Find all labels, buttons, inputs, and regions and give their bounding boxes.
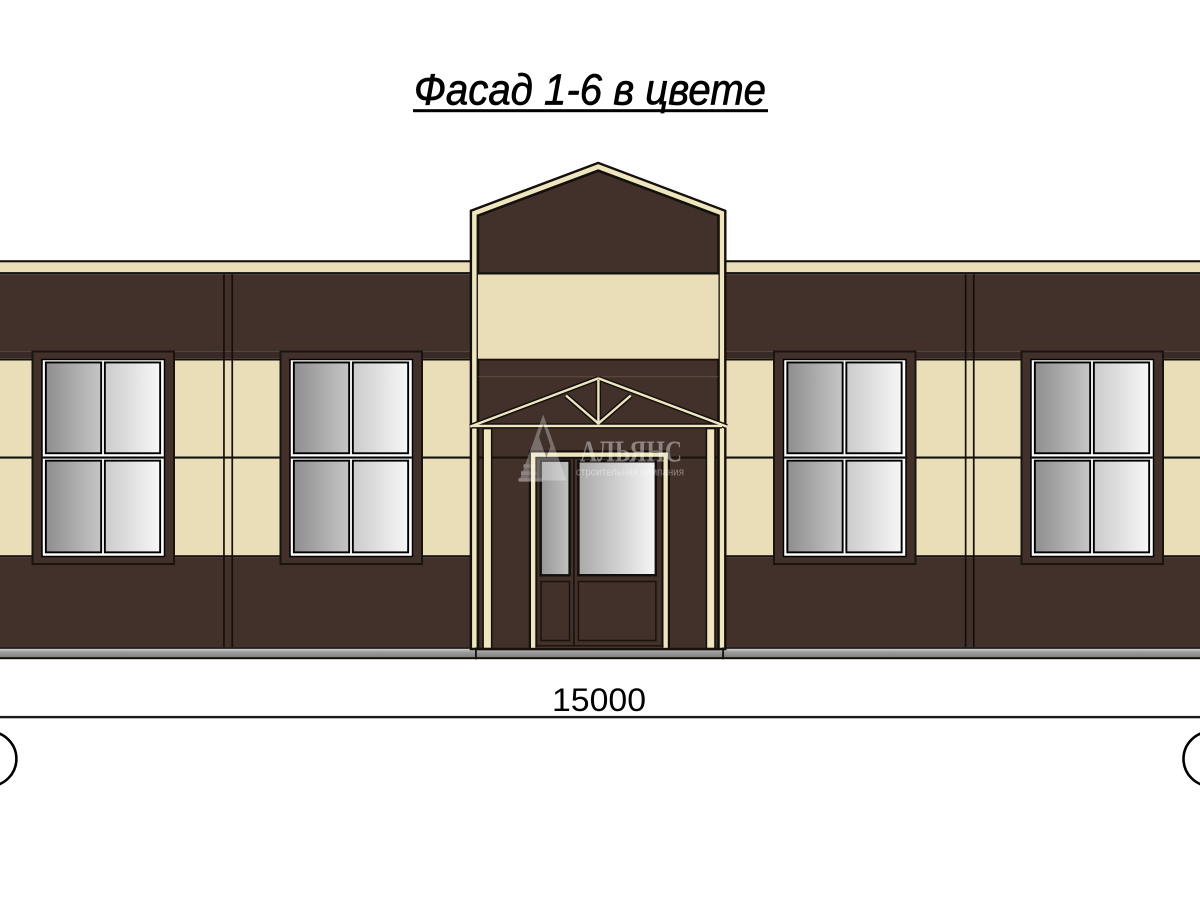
svg-text:15000: 15000 — [552, 682, 646, 718]
svg-text:Фасад 1-6 в цвете: Фасад 1-6 в цвете — [414, 66, 766, 115]
svg-text:АЛЬЯНС: АЛЬЯНС — [580, 434, 682, 468]
svg-text:строительная компания: строительная компания — [576, 467, 684, 479]
